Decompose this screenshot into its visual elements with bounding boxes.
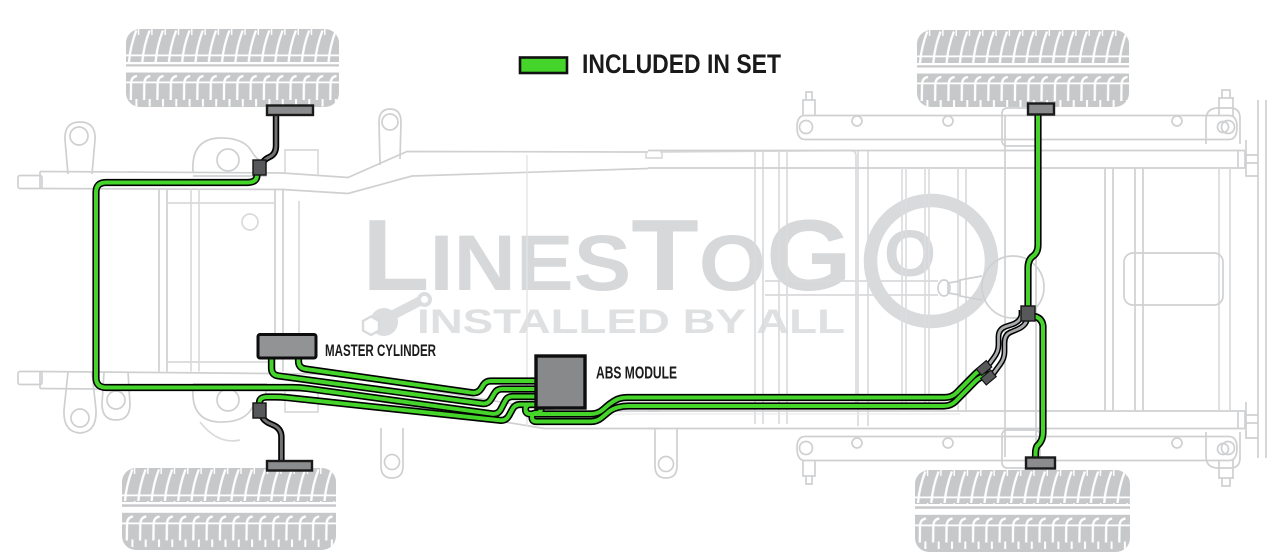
svg-text:MASTER CYLINDER: MASTER CYLINDER	[325, 341, 436, 360]
svg-text:ABS MODULE: ABS MODULE	[596, 363, 677, 383]
svg-text:INSTALLED BY ALL: INSTALLED BY ALL	[417, 303, 845, 341]
svg-text:INCLUDED IN SET: INCLUDED IN SET	[582, 49, 781, 79]
